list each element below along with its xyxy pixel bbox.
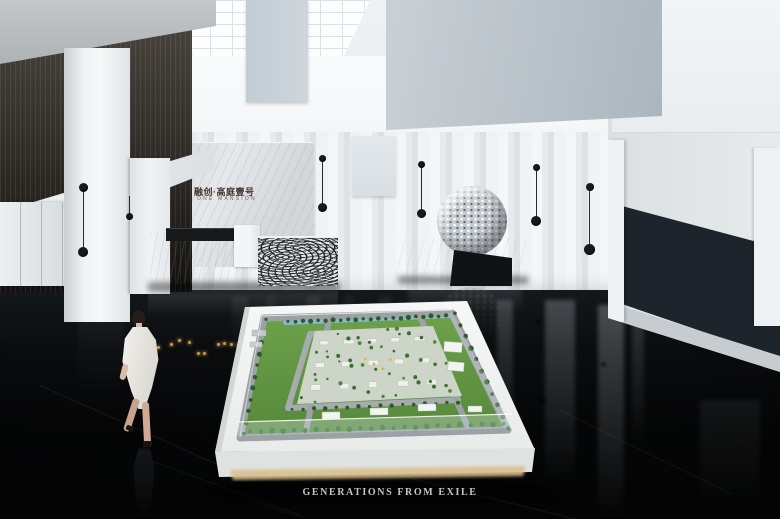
woman-leg-front — [142, 402, 151, 444]
woman-shoe — [143, 441, 152, 447]
woman-figure — [116, 306, 170, 452]
photo-caption: GENERATIONS FROM EXILE — [0, 487, 780, 498]
showroom-photo: 融创·高庭壹号 ONE MANSION — [0, 0, 780, 519]
